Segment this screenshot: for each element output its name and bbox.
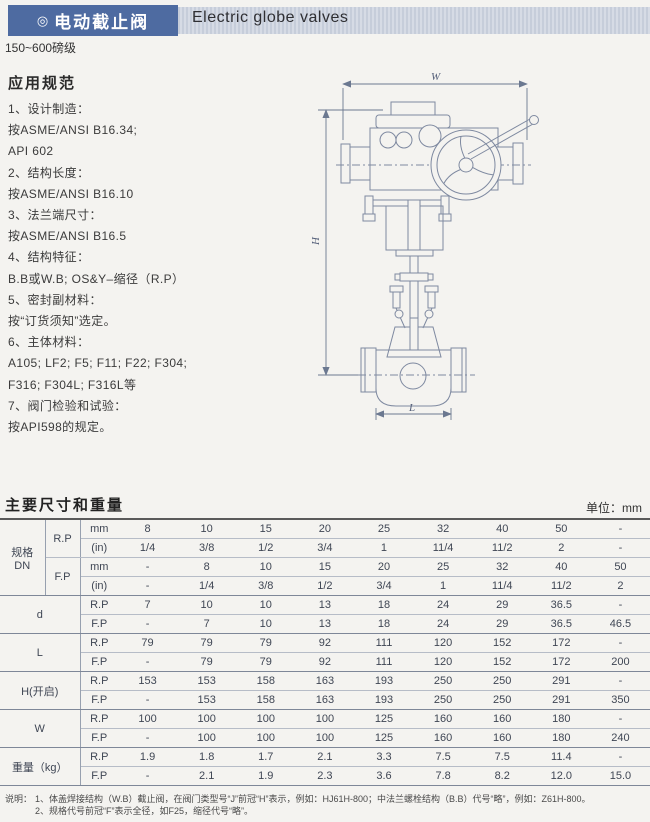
table-cell: 7 (177, 615, 236, 634)
table-cell: 7.8 (414, 767, 473, 786)
table-cell: 20 (354, 558, 413, 577)
table-cell: 10 (236, 615, 295, 634)
table-cell: d (0, 596, 80, 634)
table-cell: 100 (236, 729, 295, 748)
table-cell: - (591, 539, 650, 558)
notes-label: 说明： (5, 794, 35, 817)
table-cell: 1/4 (118, 539, 177, 558)
spec-line: A105; LF2; F5; F11; F22; F304; (8, 353, 308, 374)
table-cell: - (118, 615, 177, 634)
spec-line: 7、阀门检验和试验： (8, 396, 308, 417)
table-cell: 3.3 (354, 748, 413, 767)
table-cell: 11.4 (532, 748, 591, 767)
table-cell: 158 (236, 672, 295, 691)
table-cell: 规格 DN (0, 519, 45, 596)
table-cell: 3/4 (295, 539, 354, 558)
table-cell: - (118, 767, 177, 786)
table-cell: 180 (532, 729, 591, 748)
table-cell: - (118, 729, 177, 748)
table-cell: - (591, 748, 650, 767)
spec-line: 按ASME/ANSI B16.10 (8, 184, 308, 205)
table-cell: 120 (414, 634, 473, 653)
table-row: WR.P100100100100125160160180- (0, 710, 650, 729)
table-cell: 100 (236, 710, 295, 729)
table-cell: 1.8 (177, 748, 236, 767)
table-cell: 11/2 (473, 539, 532, 558)
table-cell: 100 (295, 710, 354, 729)
table-cell: R.P (80, 748, 118, 767)
spec-line: 按ASME/ANSI B16.34; (8, 120, 308, 141)
table-cell: L (0, 634, 80, 672)
table-cell: F.P (80, 767, 118, 786)
spec-line: 1、设计制造： (8, 99, 308, 120)
table-row: (in)1/43/81/23/4111/411/22- (0, 539, 650, 558)
table-cell: R.P (80, 596, 118, 615)
table-cell: 172 (532, 653, 591, 672)
table-cell: 2 (591, 577, 650, 596)
table-cell: - (118, 577, 177, 596)
table-cell: 15.0 (591, 767, 650, 786)
spec-lines: 1、设计制造：按ASME/ANSI B16.34;API 6022、结构长度：按… (8, 99, 308, 438)
table-unit-label: 单位：mm (586, 499, 642, 516)
table-row: F.P-2.11.92.33.67.88.212.015.0 (0, 767, 650, 786)
table-cell: 3/4 (354, 577, 413, 596)
table-cell: 13 (295, 596, 354, 615)
table-cell: 193 (354, 691, 413, 710)
table-cell: 24 (414, 615, 473, 634)
table-cell: 163 (295, 691, 354, 710)
table-cell: 40 (532, 558, 591, 577)
table-cell: 250 (473, 672, 532, 691)
table-row: 规格 DNR.Pmm810152025324050- (0, 519, 650, 539)
table-cell: 13 (295, 615, 354, 634)
table-cell: 15 (236, 519, 295, 539)
table-cell: 3/8 (177, 539, 236, 558)
table-cell: 100 (118, 710, 177, 729)
table-cell: 10 (177, 596, 236, 615)
table-cell: 100 (177, 710, 236, 729)
dim-label-l: L (408, 402, 415, 414)
table-cell: 160 (414, 729, 473, 748)
table-cell: 153 (177, 691, 236, 710)
table-cell: 250 (414, 691, 473, 710)
table-cell: 193 (354, 672, 413, 691)
page-title-cn: 电动截止阀 (54, 8, 149, 33)
table-cell: 2.1 (177, 767, 236, 786)
notes-section: 说明： 1、体盖焊接结构（W.B）截止阀，在阀门类型号“J”前冠“H”表示，例如… (5, 794, 645, 817)
table-cell: - (591, 519, 650, 539)
table-row: F.P-100100100125160160180240 (0, 729, 650, 748)
table-cell: 1/2 (236, 539, 295, 558)
table-cell: R.P (45, 519, 80, 558)
table-cell: 11/4 (414, 539, 473, 558)
table-cell: - (591, 634, 650, 653)
dim-label-w: W (431, 71, 441, 83)
table-cell: 79 (177, 634, 236, 653)
table-cell: 10 (236, 596, 295, 615)
table-cell: - (118, 653, 177, 672)
table-cell: 111 (354, 653, 413, 672)
table-cell: F.P (45, 558, 80, 596)
table-cell: 8 (177, 558, 236, 577)
spec-line: 2、结构长度： (8, 163, 308, 184)
valve-technical-drawing: W H (303, 70, 648, 490)
table-cell: 163 (295, 672, 354, 691)
table-cell: 152 (473, 634, 532, 653)
table-cell: 160 (414, 710, 473, 729)
spec-line: API 602 (8, 141, 308, 162)
table-cell: 29 (473, 615, 532, 634)
table-cell: 12.0 (532, 767, 591, 786)
table-cell: 11/2 (532, 577, 591, 596)
table-row: F.P-797992111120152172200 (0, 653, 650, 672)
table-cell: R.P (80, 710, 118, 729)
table-cell: 153 (118, 672, 177, 691)
dimensions-table: 规格 DNR.Pmm810152025324050-(in)1/43/81/23… (0, 518, 650, 786)
table-cell: 1 (414, 577, 473, 596)
table-cell: 160 (473, 729, 532, 748)
table-cell: F.P (80, 615, 118, 634)
table-cell: - (118, 691, 177, 710)
table-cell: 2 (532, 539, 591, 558)
table-cell: 8.2 (473, 767, 532, 786)
table-cell: 36.5 (532, 596, 591, 615)
spec-line: 按API598的规定。 (8, 417, 308, 438)
table-cell: 92 (295, 634, 354, 653)
table-cell: 350 (591, 691, 650, 710)
table-cell: 291 (532, 672, 591, 691)
table-cell: 120 (414, 653, 473, 672)
table-cell: mm (80, 519, 118, 539)
table-cell: 3.6 (354, 767, 413, 786)
spec-line: 4、结构特征： (8, 247, 308, 268)
table-cell: mm (80, 558, 118, 577)
table-cell: - (591, 710, 650, 729)
spec-line: B.B或W.B; OS&Y–缩径（R.P） (8, 269, 308, 290)
table-cell: 重量（kg） (0, 748, 80, 786)
table-cell: - (591, 596, 650, 615)
table-cell: 200 (591, 653, 650, 672)
note-line: 1、体盖焊接结构（W.B）截止阀，在阀门类型号“J”前冠“H”表示，例如：HJ6… (35, 794, 591, 806)
table-cell: 7.5 (414, 748, 473, 767)
table-row: F.P-7101318242936.546.5 (0, 615, 650, 634)
table-cell: 172 (532, 634, 591, 653)
table-cell: 158 (236, 691, 295, 710)
table-cell: R.P (80, 672, 118, 691)
table-cell: F.P (80, 653, 118, 672)
table-row: F.P-153158163193250250291350 (0, 691, 650, 710)
table-cell: 180 (532, 710, 591, 729)
table-cell: 8 (118, 519, 177, 539)
table-cell: 15 (295, 558, 354, 577)
table-cell: F.P (80, 729, 118, 748)
table-cell: 10 (177, 519, 236, 539)
table-cell: 50 (532, 519, 591, 539)
table-cell: 1 (354, 539, 413, 558)
page-root: ◎ 电动截止阀 Electric globe valves 150~600磅级 … (0, 0, 650, 822)
table-cell: 50 (591, 558, 650, 577)
header-badge: ◎ 电动截止阀 (8, 5, 178, 36)
table-cell: 125 (354, 729, 413, 748)
table-cell: 1.9 (236, 767, 295, 786)
spec-line: 按ASME/ANSI B16.5 (8, 226, 308, 247)
table-row: dR.P710101318242936.5- (0, 596, 650, 615)
table-cell: 250 (473, 691, 532, 710)
table-cell: 1/2 (295, 577, 354, 596)
table-cell: R.P (80, 634, 118, 653)
spec-line: 3、法兰端尺寸： (8, 205, 308, 226)
pressure-class-label: 150~600磅级 (5, 39, 76, 56)
table-cell: 18 (354, 615, 413, 634)
table-cell: 25 (414, 558, 473, 577)
table-cell: 1.9 (118, 748, 177, 767)
table-cell: 125 (354, 710, 413, 729)
table-cell: F.P (80, 691, 118, 710)
dim-label-h: H (310, 236, 322, 246)
table-cell: 250 (414, 672, 473, 691)
table-cell: 79 (236, 634, 295, 653)
table-cell: 2.1 (295, 748, 354, 767)
table-row: LR.P79797992111120152172- (0, 634, 650, 653)
table-cell: 100 (177, 729, 236, 748)
table-cell: 10 (236, 558, 295, 577)
table-cell: 79 (118, 634, 177, 653)
table-cell: 46.5 (591, 615, 650, 634)
spec-line: 6、主体材料： (8, 332, 308, 353)
table-row: 重量（kg）R.P1.91.81.72.13.37.57.511.4- (0, 748, 650, 767)
table-cell: 160 (473, 710, 532, 729)
table-cell: 152 (473, 653, 532, 672)
table-cell: 3/8 (236, 577, 295, 596)
table-cell: W (0, 710, 80, 748)
table-cell: 32 (473, 558, 532, 577)
double-circle-icon: ◎ (37, 13, 48, 29)
specs-heading: 应用规范 (8, 72, 76, 93)
table-cell: 32 (414, 519, 473, 539)
table-cell: H(开启) (0, 672, 80, 710)
note-line: 2、规格代号前冠“F”表示全径，如F25，缩径代号“略”。 (35, 806, 591, 818)
table-cell: 291 (532, 691, 591, 710)
table-cell: 111 (354, 634, 413, 653)
table-cell: 11/4 (473, 577, 532, 596)
table-cell: 18 (354, 596, 413, 615)
table-cell: 1/4 (177, 577, 236, 596)
spec-line: F316; F304L; F316L等 (8, 375, 308, 396)
page-title-en: Electric globe valves (192, 9, 348, 27)
table-row: F.Pmm-810152025324050 (0, 558, 650, 577)
spec-line: 按“订货须知”选定。 (8, 311, 308, 332)
table-row: H(开启)R.P153153158163193250250291- (0, 672, 650, 691)
table-cell: 153 (177, 672, 236, 691)
table-cell: 1.7 (236, 748, 295, 767)
table-cell: 7 (118, 596, 177, 615)
table-cell: - (591, 672, 650, 691)
table-cell: 7.5 (473, 748, 532, 767)
table-cell: 40 (473, 519, 532, 539)
table-title: 主要尺寸和重量 (5, 494, 124, 515)
table-cell: 36.5 (532, 615, 591, 634)
table-cell: 29 (473, 596, 532, 615)
table-cell: (in) (80, 539, 118, 558)
table-cell: - (118, 558, 177, 577)
table-cell: 25 (354, 519, 413, 539)
spec-line: 5、密封副材料： (8, 290, 308, 311)
table-cell: 240 (591, 729, 650, 748)
table-cell: 2.3 (295, 767, 354, 786)
table-cell: 100 (295, 729, 354, 748)
table-row: (in)-1/43/81/23/4111/411/22 (0, 577, 650, 596)
notes-lines: 1、体盖焊接结构（W.B）截止阀，在阀门类型号“J”前冠“H”表示，例如：HJ6… (35, 794, 591, 817)
table-cell: 79 (236, 653, 295, 672)
table-cell: (in) (80, 577, 118, 596)
table-cell: 20 (295, 519, 354, 539)
table-cell: 79 (177, 653, 236, 672)
table-cell: 24 (414, 596, 473, 615)
table-cell: 92 (295, 653, 354, 672)
